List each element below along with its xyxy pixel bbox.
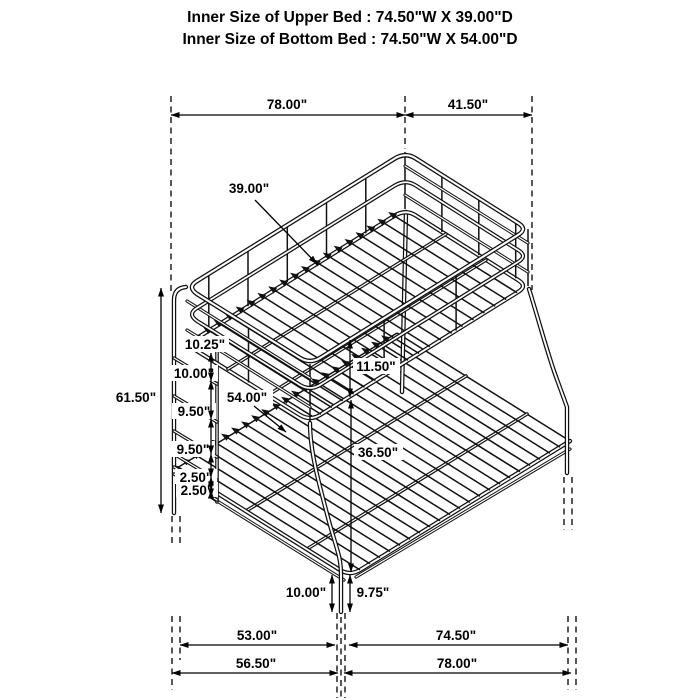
dim-label-ladder-gap-1: 10.25" xyxy=(185,337,225,352)
dim-label-lower-depth: 54.00" xyxy=(227,390,267,405)
dim-label-ladder-gap-3: 9.50" xyxy=(178,404,211,419)
dim-label-upper-depth: 39.00" xyxy=(229,181,269,196)
dim-label-ladder-gap-2: 10.00" xyxy=(174,366,214,381)
dim-label-front-leg-inner-height: 9.75" xyxy=(357,585,390,600)
dim-label-floor-outer-right: 78.00" xyxy=(437,656,477,671)
header-upper-bed-size: Inner Size of Upper Bed : 74.50"W X 39.0… xyxy=(187,9,513,26)
dim-label-clearance: 36.50" xyxy=(358,445,398,460)
header-lower-bed-size: Inner Size of Bottom Bed : 74.50"W X 54.… xyxy=(182,31,517,48)
dim-label-ladder-gap-6: 2.50" xyxy=(181,483,214,498)
dim-label-top-width: 78.00" xyxy=(267,97,307,112)
bunk-bed-dimension-diagram: Inner Size of Upper Bed : 74.50"W X 39.0… xyxy=(0,0,700,700)
dim-label-overall-height: 61.50" xyxy=(116,390,156,405)
dim-label-floor-inner-right: 74.50" xyxy=(436,628,476,643)
dim-label-floor-inner-left: 53.00" xyxy=(237,628,277,643)
dim-label-top-overhang: 41.50" xyxy=(448,97,488,112)
dim-label-ladder-gap-4: 9.50" xyxy=(177,442,210,457)
bunk-bed-dimension-page: Inner Size of Upper Bed : 74.50"W X 39.0… xyxy=(0,0,700,700)
dim-label-guardrail-height: 11.50" xyxy=(356,359,395,374)
dim-label-front-leg-height: 10.00" xyxy=(286,585,326,600)
dim-label-floor-outer-left: 56.50" xyxy=(236,656,276,671)
